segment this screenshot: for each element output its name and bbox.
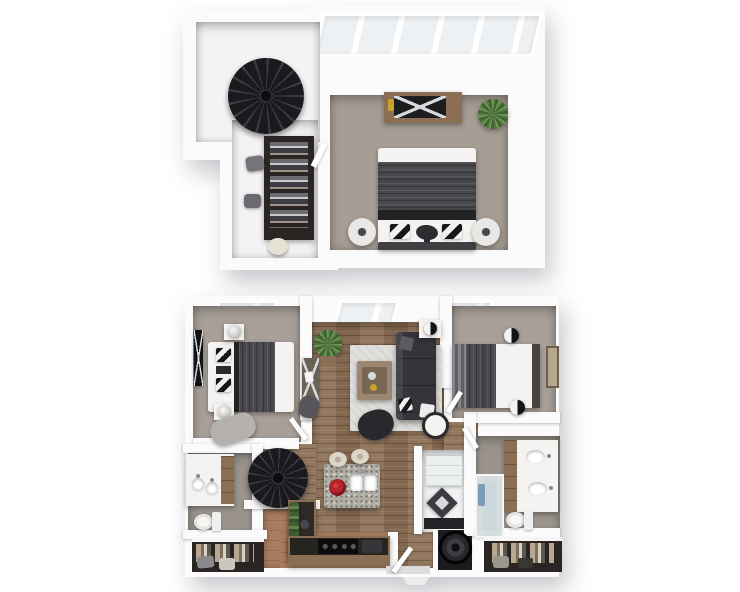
range-cooktop xyxy=(318,539,358,554)
spiral-staircase-lower xyxy=(248,448,308,508)
closet-left-shelf xyxy=(192,538,264,542)
counter-item xyxy=(300,520,309,529)
bed-left xyxy=(208,342,294,412)
sofa-pillow-2 xyxy=(398,397,413,412)
closet-right-shelf xyxy=(484,537,562,541)
lamp-right-bed-top xyxy=(504,328,519,343)
bar-stool-2 xyxy=(351,449,369,464)
toilet-left-bowl xyxy=(194,514,213,530)
lamp-right-bed-bottom xyxy=(510,400,525,415)
closet-left-ottoman xyxy=(196,555,214,569)
faucet-right-2 xyxy=(549,486,553,490)
island-sink-1 xyxy=(350,474,363,491)
pillow-b xyxy=(216,378,231,392)
counter-appliance xyxy=(362,540,382,553)
faucet-left-1 xyxy=(196,474,200,478)
plant-stand xyxy=(320,356,336,367)
stair-center-post-lower xyxy=(273,473,283,483)
toilet-left-tank xyxy=(212,512,221,531)
floor-lamp xyxy=(422,412,449,439)
faucet-right-1 xyxy=(547,454,551,458)
vanity-right xyxy=(504,440,558,512)
desk-paper xyxy=(304,371,314,382)
sink-right-1 xyxy=(526,450,545,464)
vanity-left-cabinet xyxy=(221,456,234,504)
main-level xyxy=(0,0,740,592)
bed-right xyxy=(452,344,540,408)
plant-living xyxy=(314,330,342,358)
utility-appliance xyxy=(426,456,462,486)
tray-candle xyxy=(370,384,377,391)
closet-right-ottoman xyxy=(493,556,509,568)
toilet-right-bowl xyxy=(506,512,525,528)
shower-towel xyxy=(478,484,485,506)
pillow-a xyxy=(216,348,231,362)
vanity-right-cabinet xyxy=(504,440,517,512)
faucet-left-2 xyxy=(210,478,214,482)
duvet-left-bed xyxy=(239,342,275,412)
closet-right-basket xyxy=(518,558,533,568)
bed-right-headboard xyxy=(532,344,540,408)
entry-step xyxy=(400,577,432,585)
bar-stool-1 xyxy=(329,452,347,467)
red-bowl xyxy=(329,479,346,496)
bed-right-duvet xyxy=(466,344,496,408)
sink-left-1 xyxy=(192,478,204,490)
wall-art xyxy=(546,346,559,388)
coffee-table xyxy=(357,361,392,400)
wall-utility-left xyxy=(414,446,422,534)
lamp-top xyxy=(228,325,241,338)
throw-strip xyxy=(216,366,231,374)
sink-left-2 xyxy=(206,482,218,494)
kitchen-island xyxy=(324,464,380,508)
island-sink-2 xyxy=(364,474,377,491)
tray-dish xyxy=(368,372,376,380)
sofa-pillow-1 xyxy=(399,336,415,352)
sink-right-2 xyxy=(528,482,547,496)
vanity-left xyxy=(186,454,234,506)
closet-left-stool xyxy=(219,558,235,570)
island-faucet xyxy=(359,469,365,474)
wall-tv-left-bedroom xyxy=(194,330,203,386)
washer xyxy=(441,533,470,562)
toilet-right-tank xyxy=(524,511,533,530)
floorplan-canvas xyxy=(0,0,740,592)
sectional-sofa xyxy=(396,332,436,420)
side-table-lamp xyxy=(424,322,437,335)
utility-shelf xyxy=(424,518,464,529)
